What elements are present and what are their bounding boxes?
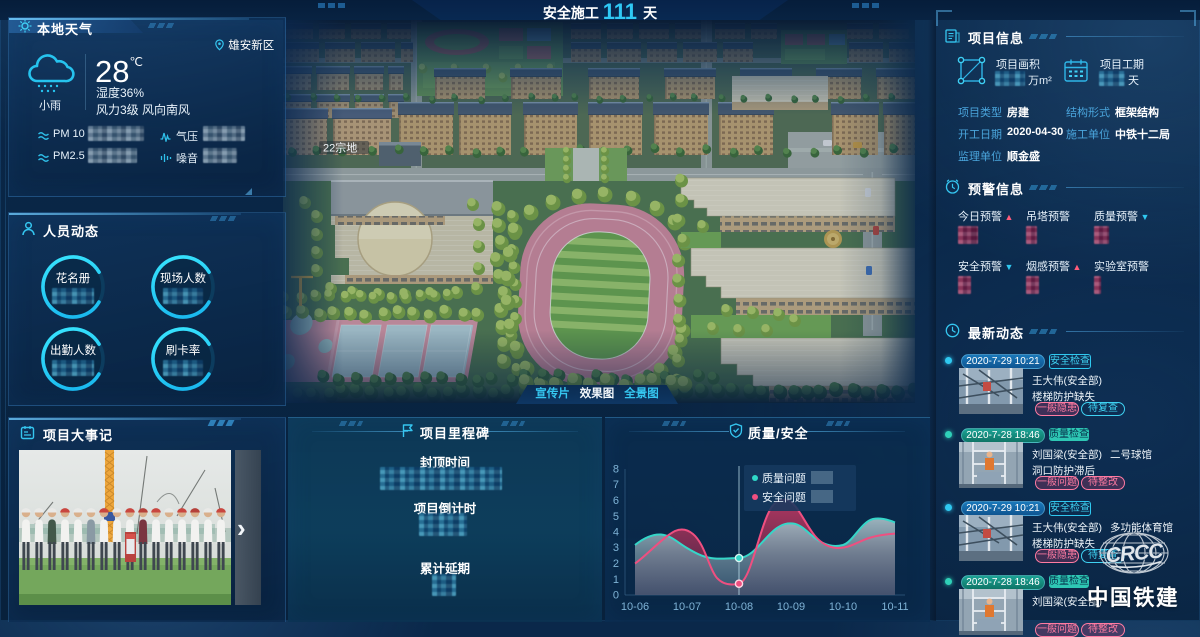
svg-text:8: 8: [613, 464, 619, 476]
svg-text:1: 1: [613, 574, 619, 586]
svg-text:质量问题: 质量问题: [762, 472, 806, 485]
svg-text:7: 7: [613, 479, 619, 491]
svg-text:3: 3: [613, 542, 619, 554]
svg-text:6: 6: [613, 495, 619, 507]
svg-text:10-09: 10-09: [777, 601, 805, 613]
svg-text:10-11: 10-11: [881, 601, 908, 613]
svg-text:10-08: 10-08: [725, 601, 753, 613]
svg-text:4: 4: [613, 527, 619, 539]
svg-text:安全问题: 安全问题: [762, 490, 806, 504]
svg-text:10-07: 10-07: [673, 601, 701, 613]
svg-text:0: 0: [613, 590, 619, 602]
svg-text:22宗地: 22宗地: [323, 141, 357, 155]
svg-text:5: 5: [613, 511, 619, 523]
svg-text:2: 2: [613, 558, 619, 570]
svg-text:10-06: 10-06: [621, 601, 649, 613]
svg-text:10-10: 10-10: [829, 601, 857, 613]
